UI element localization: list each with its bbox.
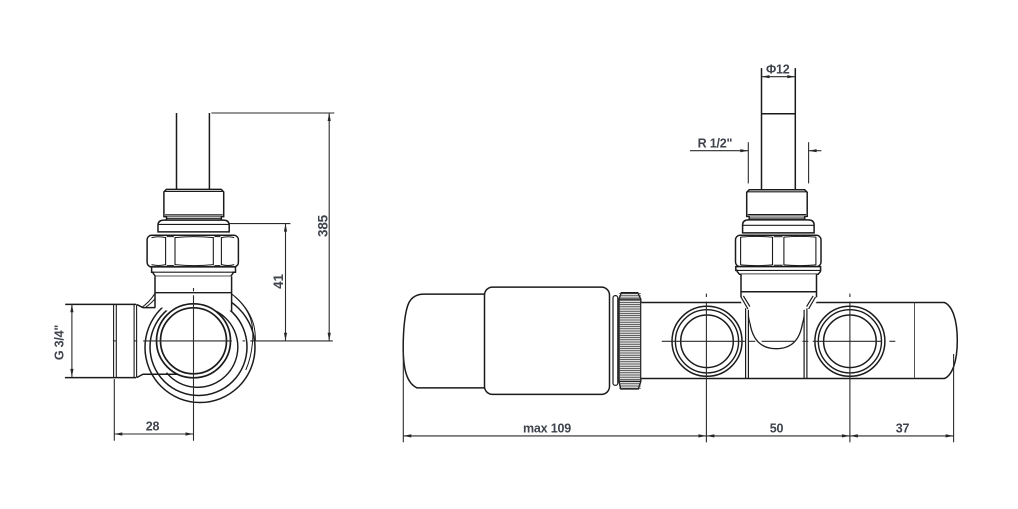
svg-text:max 109: max 109	[523, 421, 571, 435]
svg-text:37: 37	[896, 421, 910, 435]
svg-text:41: 41	[271, 274, 286, 289]
svg-text:R 1/2": R 1/2"	[698, 136, 733, 150]
svg-text:G 3/4": G 3/4"	[53, 325, 67, 361]
svg-text:385: 385	[316, 214, 331, 237]
svg-text:28: 28	[146, 420, 160, 434]
svg-text:Φ12: Φ12	[766, 63, 790, 77]
svg-text:50: 50	[770, 421, 784, 435]
